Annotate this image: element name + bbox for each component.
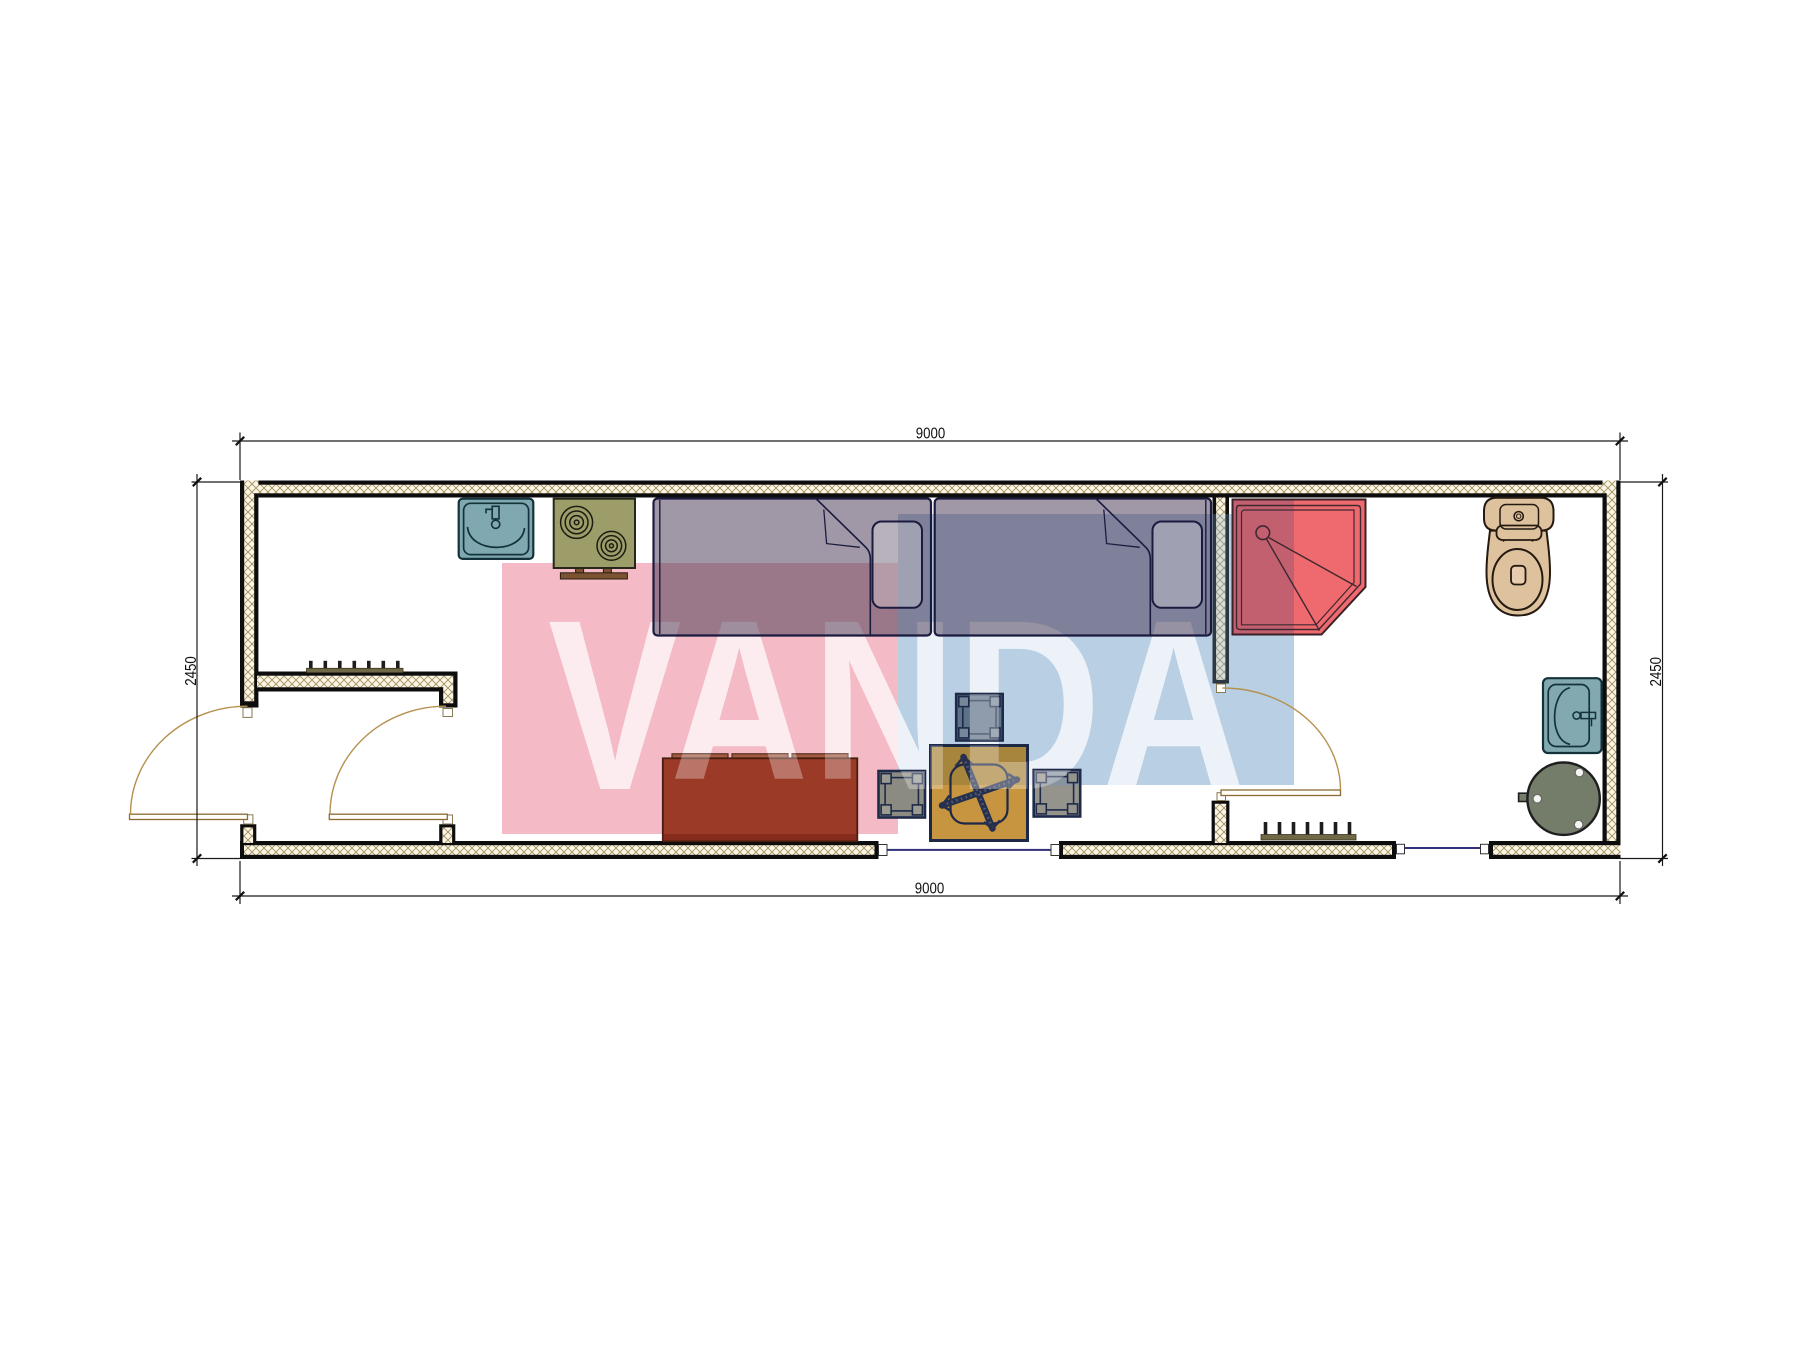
svg-text:9000: 9000 <box>916 425 946 442</box>
svg-text:2450: 2450 <box>1648 657 1665 687</box>
svg-text:2450: 2450 <box>183 656 200 686</box>
svg-text:9000: 9000 <box>915 881 945 898</box>
